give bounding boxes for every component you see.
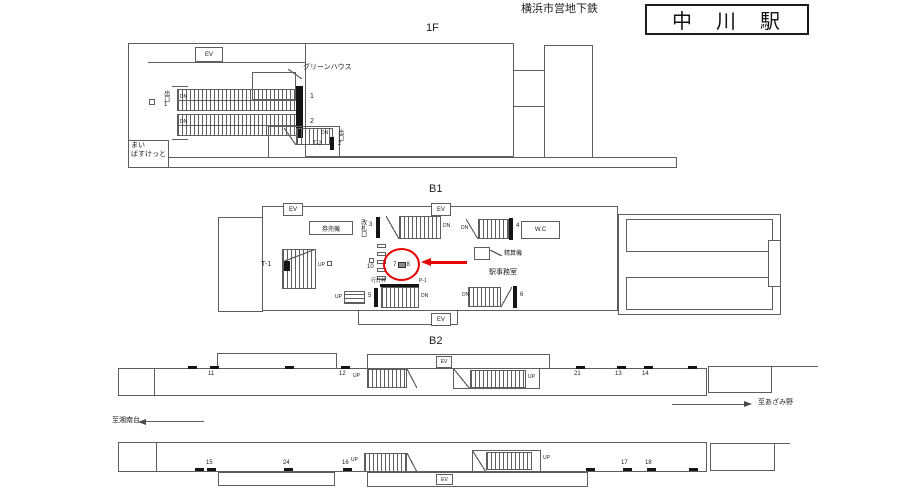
ad-number-14: 14 [642, 371, 649, 378]
station-name-box: 中 川 駅 [645, 4, 809, 35]
elevator-box-b2-upper: EV [436, 356, 452, 368]
station-map: 横浜市営地下鉄 中 川 駅 1F EV グリーンハウス 出口1 DN 1 DN … [0, 0, 919, 491]
stairs-4-dn: DN [461, 226, 468, 232]
elevator-box-b1-top-left: EV [283, 203, 303, 216]
ad-mark [689, 468, 698, 471]
ad-number-3: 3 [369, 222, 372, 229]
escalator-arrow-line [172, 86, 188, 87]
escalator-1 [177, 89, 299, 111]
exit-1-label: 出口1 [162, 90, 169, 108]
ad-mark [688, 366, 697, 369]
b2-upper-stairs-left [367, 369, 407, 388]
stairs-6-landing [501, 287, 512, 307]
elevator-box-b2-lower: EV [436, 474, 453, 485]
ad-number-16: 16 [342, 460, 349, 467]
b1-track-end-room [768, 240, 781, 287]
gate-lane [377, 244, 386, 248]
b1-small-stairs-up: UP [335, 295, 342, 301]
ad-mark [647, 468, 656, 471]
platform-lower-right-end [710, 443, 775, 471]
b2-lower-stairs-right [486, 452, 532, 470]
stair-t1-label: T-1 [261, 261, 271, 269]
b2-concourse-outline-left [217, 353, 337, 369]
ticket-machine-box: 券売機 [309, 221, 353, 235]
elevator-box-b1-top: EV [431, 203, 451, 216]
wc-room: W.C [521, 221, 560, 239]
b2-lower-concourse-outline-left [218, 472, 335, 486]
b2-upper-stairs-left-up: UP [353, 374, 360, 380]
direction-shonandai-arrow-head [138, 419, 146, 425]
fare-adjustment-label: 精算機 [504, 251, 522, 258]
stairs-6-dn: DN [462, 293, 469, 299]
ad-board-5-bar [374, 288, 378, 307]
b1-bottom-stairs-dn: DN [421, 294, 428, 300]
fare-adjustment-pointer [490, 250, 502, 256]
ad-mark [284, 468, 293, 471]
elevator-label: EV [441, 359, 448, 365]
b2-lower-concourse-outline-right [367, 472, 588, 487]
ad-number-1: 1 [310, 93, 314, 101]
ad-mark [285, 366, 294, 369]
exit-2-label: 出口2 [336, 129, 343, 147]
store-label-line1: まい [131, 142, 145, 150]
ad-mark [644, 366, 653, 369]
f1-inner-wall [148, 62, 306, 63]
ad-board-6-bar [513, 286, 517, 308]
exit-2-stair-landing [284, 128, 296, 145]
ad-mark [343, 468, 352, 471]
ad-number-15: 15 [206, 460, 213, 467]
b1-top-stairs-dn: DN [443, 224, 450, 230]
b2-upper-stairs-left-landing [407, 369, 417, 388]
position-p1-label: P-1 [419, 279, 427, 285]
operator-label: 横浜市営地下鉄 [521, 3, 598, 15]
ad-mark [195, 468, 204, 471]
elevator-box-b1-bottom: EV [431, 313, 451, 326]
ad-mark [210, 366, 219, 369]
ad-frame-7-8-highlight-circle: 7 8 [383, 248, 420, 281]
station-name: 中 川 駅 [672, 5, 782, 34]
ad-number-5: 5 [368, 293, 371, 300]
ad-number-4: 4 [516, 223, 519, 230]
ad-number-11: 11 [208, 371, 214, 378]
greenhouse-pointer-line [288, 69, 302, 79]
ticket-machine-label: 券売機 [322, 224, 340, 233]
b1-track-south [626, 277, 773, 310]
highlight-arrow-line [430, 261, 467, 264]
floor-label-1f: 1F [426, 22, 439, 34]
ad-number-12: 12 [339, 371, 346, 378]
lightbox-icon [398, 262, 406, 268]
direction-azamino-arrow-line [672, 404, 744, 405]
stair-t2-bar [330, 137, 334, 150]
b2-lower-stairs-right-landing [472, 450, 486, 472]
fare-adjustment-box [474, 247, 490, 260]
ad-board-4-bar [509, 218, 513, 240]
direction-azamino-label: 至あざみ野 [758, 399, 793, 407]
ad-mark [341, 366, 350, 369]
b2-lower-stairs-left-up: UP [351, 458, 358, 464]
stairs-6 [468, 287, 501, 307]
store-label-line2: ばすけっと [131, 151, 166, 159]
f1-corridor-line [514, 106, 545, 107]
exit-2-dn: DN [321, 131, 328, 137]
b1-small-stairs [344, 291, 365, 304]
elevator-label: EV [289, 207, 297, 213]
b1-track-north [626, 219, 773, 252]
track-line [775, 443, 790, 444]
b2-upper-stairs-right [470, 370, 526, 388]
floor-label-b1: B1 [429, 183, 442, 195]
stairs-4 [478, 219, 509, 239]
escalator-2-dn: DN [180, 120, 187, 126]
b1-top-stair-landing [386, 216, 399, 239]
highlight-number-8: 8 [407, 262, 410, 268]
ticket-gate-label: 改札口 [359, 219, 366, 237]
highlight-number-7: 7 [393, 262, 396, 268]
f1-bottom-strip [128, 157, 677, 168]
ad-number-24: 24 [283, 460, 290, 467]
platform-lower-left-end [118, 442, 157, 472]
ad-number-18: 18 [645, 460, 652, 467]
f1-right-building [544, 45, 593, 158]
ad-mark [207, 468, 216, 471]
escalator-1-end-bar [296, 86, 303, 113]
wc-label: W.C [535, 227, 546, 233]
ad-number-10: 10 [367, 264, 374, 271]
pillar-square [327, 261, 332, 266]
b1-left-annex [218, 217, 263, 312]
elevator-box-1f: EV [195, 47, 223, 62]
ad-number-13: 13 [615, 371, 622, 378]
ad-mark [617, 366, 626, 369]
b2-lower-stairs-right-up: UP [543, 456, 550, 462]
ad-number-21: 21 [574, 371, 581, 378]
pillar-square [149, 99, 155, 105]
stairs-t1-up: UP [318, 263, 325, 269]
ad-number-6: 6 [520, 292, 523, 299]
greenhouse-label: グリーンハウス [303, 64, 352, 72]
elevator-label: EV [441, 477, 448, 483]
escalator-1-dn: DN [180, 95, 187, 101]
ad-mark [576, 366, 585, 369]
station-office-label: 駅事務室 [489, 269, 517, 277]
platform-upper-left-end [118, 368, 155, 396]
elevator-label: EV [437, 317, 445, 323]
ad-number-2: 2 [310, 118, 314, 126]
stairs-t1-bar [284, 261, 290, 271]
ad-mark [586, 468, 595, 471]
elevator-label: EV [437, 207, 445, 213]
ad-mark [623, 468, 632, 471]
track-line [772, 366, 818, 367]
f1-corridor-line [514, 70, 545, 71]
elevator-label: EV [205, 52, 213, 58]
b2-concourse-outline-right [367, 354, 550, 369]
b1-bottom-stairs [381, 287, 419, 308]
b2-upper-stairs-right-landing [453, 368, 470, 389]
ad-board-3-bar [376, 217, 380, 238]
escalator-arrow-line [172, 139, 188, 140]
stair-t2-label: T-2 [313, 141, 322, 148]
direction-shonandai-arrow-line [146, 421, 204, 422]
b2-upper-stairs-right-up: UP [528, 375, 535, 381]
b2-lower-stairs-left [364, 453, 407, 472]
floor-label-b2: B2 [429, 335, 442, 347]
ad-mark [188, 366, 197, 369]
platform-upper-right-end [708, 366, 772, 393]
ad-number-17: 17 [621, 460, 628, 467]
direction-shonandai-label: 至湘南台 [112, 417, 140, 425]
direction-azamino-arrow-head [744, 401, 752, 407]
b1-top-stairs [399, 216, 441, 239]
ad-board-10-square [369, 258, 374, 263]
b2-lower-stairs-left-landing [407, 453, 417, 472]
